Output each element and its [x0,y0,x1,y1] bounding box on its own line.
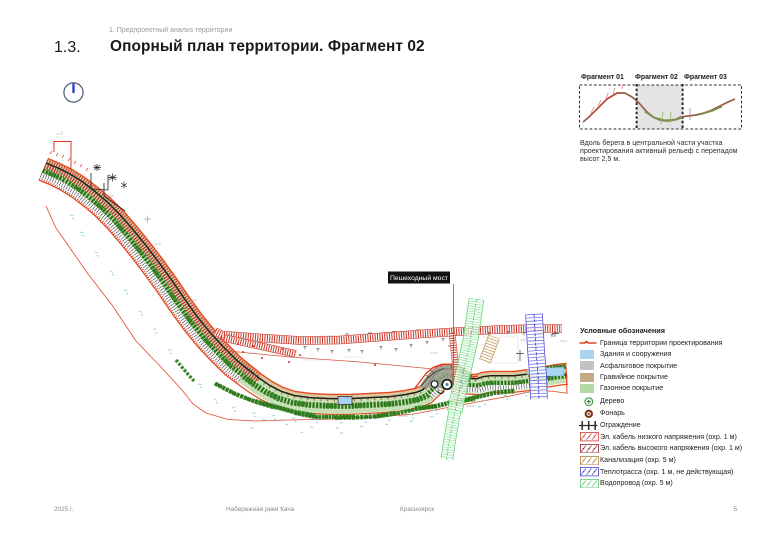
svg-text:Пешеходный мост: Пешеходный мост [390,274,448,282]
